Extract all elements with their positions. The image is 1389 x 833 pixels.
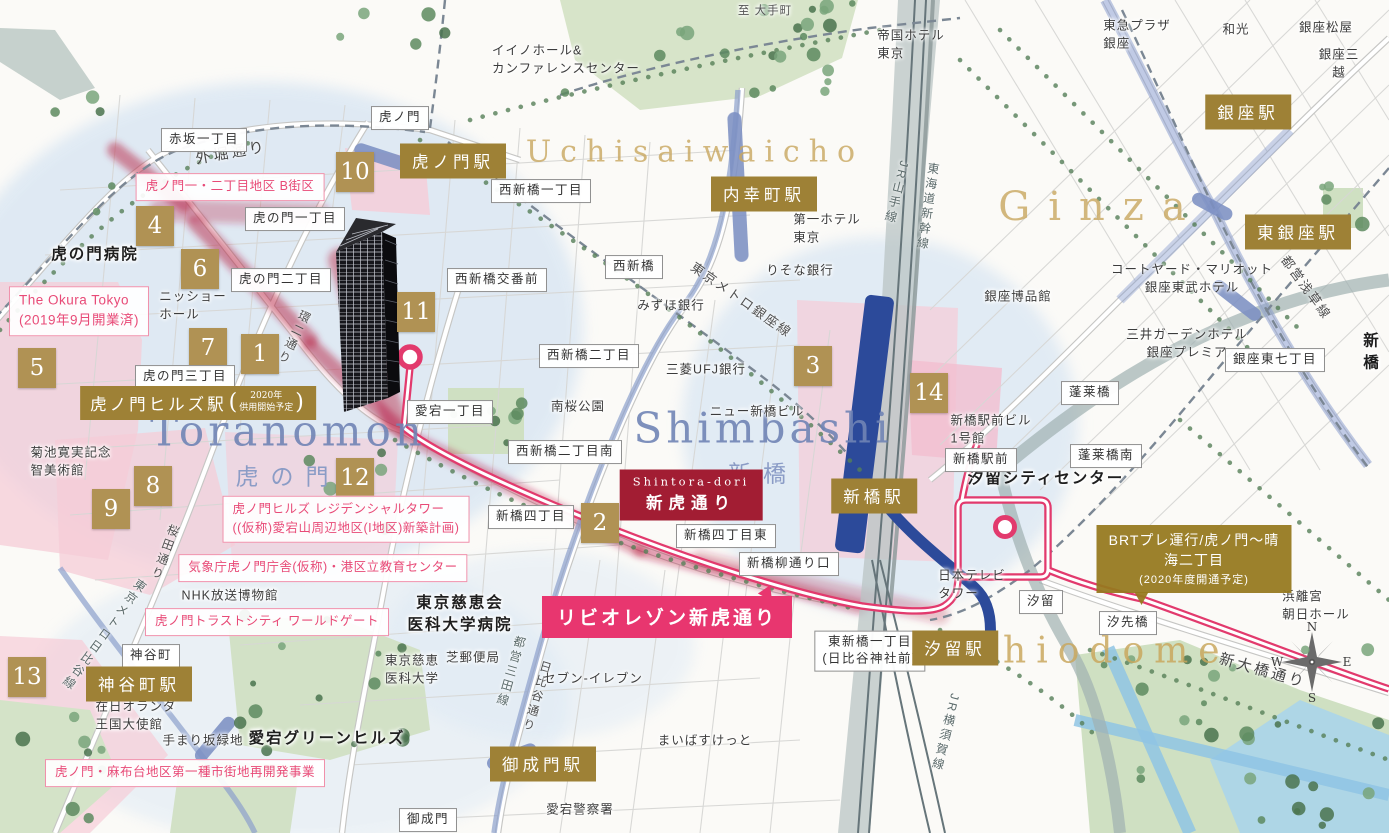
sign-kamiyacho: 神谷町 — [122, 644, 180, 668]
poi-toranomon-hospital: 虎の門病院 — [51, 244, 139, 266]
poi-to-otemachi: 至 大手町 — [738, 3, 792, 19]
project-azabudai: 虎ノ門・麻布台地区第一種市街地再開発事業 — [45, 759, 325, 787]
sign-shimbashi-4: 新橋四丁目 — [488, 505, 574, 529]
station-toranomon-hills: 虎ノ門ヒルズ駅 ( 2020年 供用開始予定 ) — [80, 386, 316, 420]
project-trust-city: 虎ノ門トラストシティ ワールドゲート — [145, 608, 389, 636]
station-uchisaiwaicho: 内幸町駅 — [711, 177, 817, 212]
poi-minamisakura-park: 南桜公園 — [551, 398, 605, 416]
poi-atago-green-hills: 愛宕グリーンヒルズ — [249, 728, 406, 750]
area-title-shiodome: Shiodome — [968, 631, 1229, 672]
project-kishocho: 気象庁虎ノ門庁舎(仮称)・港区立教育センター — [178, 554, 467, 582]
station-kamiyacho: 神谷町駅 — [86, 667, 192, 702]
station-shimbashi: 新橋駅 — [831, 479, 917, 514]
badge-6: 6 — [181, 249, 219, 289]
station-toranomon: 虎ノ門駅 — [400, 144, 506, 179]
sign-shiosaibashi: 汐先橋 — [1099, 611, 1157, 635]
poi-seven-eleven: セブン-イレブン — [543, 670, 643, 688]
sign-toranomon-2: 虎の門二丁目 — [231, 268, 331, 292]
sign-akasaka-1: 赤坂一丁目 — [161, 128, 247, 152]
poi-temarizaka-ryokuchi: 手まり坂緑地 — [162, 732, 243, 750]
poi-shiba-post-office: 芝郵便局 — [446, 649, 500, 667]
poi-nittele-tower: 日本テレビ タワー — [938, 568, 1006, 603]
shintora-dori-sign: Shintora-dori 新虎通り — [620, 470, 763, 521]
area-title-uchisaiwaicho: Uchisaiwaicho — [526, 135, 864, 170]
poi-imperial-hotel: 帝国ホテル 東京 — [877, 28, 945, 63]
compass-s: S — [1308, 691, 1316, 705]
station-ginza: 銀座駅 — [1205, 95, 1291, 130]
sign-toranomon: 虎ノ門 — [371, 106, 429, 130]
project-residential-tower: 虎ノ門ヒルズ レジデンシャルタワー ((仮称)愛宕山周辺地区(I地区)新築計画) — [223, 496, 470, 543]
project-okura-tokyo: The Okura Tokyo (2019年9月開業済) — [9, 286, 149, 336]
brt-route-sign: BRTプレ運行/虎ノ門〜晴海二丁目 (2020年度開通予定) — [1097, 525, 1292, 593]
poi-tokyu-plaza: 東急プラザ 銀座 — [1103, 18, 1171, 53]
sign-nishishimbashi-2-minami: 西新橋二丁目南 — [508, 440, 622, 464]
project-toranomon-1-2-b: 虎ノ門一・二丁目地区 B街区 — [136, 173, 325, 201]
poi-hakuhinkan: 銀座博品館 — [984, 288, 1052, 306]
sign-horaibashi-minami: 蓬莱橋南 — [1070, 444, 1142, 468]
station-higashi-ginza: 東銀座駅 — [1245, 215, 1351, 250]
libior-ezon-shintora-banner: リビオレゾン新虎通り — [542, 596, 792, 638]
badge-2: 2 — [581, 503, 619, 543]
badge-7: 7 — [189, 328, 227, 368]
badge-13: 13 — [8, 657, 46, 697]
sign-toranomon-1: 虎の門一丁目 — [245, 207, 345, 231]
poi-nissho-hall: ニッショー ホール — [159, 289, 227, 324]
poi-jikei-university: 東京慈恵 医科大学 — [385, 653, 439, 688]
sign-ginza-higashi-7: 銀座東七丁目 — [1225, 348, 1325, 372]
poi-dutch-embassy: 在日オランダ 王国大使館 — [95, 699, 176, 734]
badge-9: 9 — [92, 489, 130, 529]
poi-resona-bank: りそな銀行 — [766, 262, 834, 280]
poi-iino-hall: イイノホール& カンファレンスセンター — [492, 43, 640, 78]
sign-horaibashi: 蓬莱橋 — [1061, 381, 1119, 405]
badge-5: 5 — [18, 348, 56, 388]
poi-mizuho-bank: みずほ銀行 — [637, 297, 705, 315]
poi-ginza-mitsukoshi: 銀座三越 — [1314, 47, 1364, 82]
poi-mufg-bank: 三菱UFJ銀行 — [666, 361, 746, 379]
compass-e: E — [1343, 655, 1352, 669]
toranomon-hills-tower — [336, 218, 400, 412]
sign-shimbashi-ekimae: 新橋駅前 — [945, 448, 1017, 472]
poi-new-shimbashi-bldg: ニュー新橋ビル — [710, 403, 805, 421]
poi-jikei-hospital: 東京慈恵会 医科大学病院 — [407, 592, 512, 635]
badge-14: 14 — [910, 373, 948, 413]
sign-yanagi-dori-guchi: 新橋柳通り口 — [739, 552, 839, 576]
area-title-ginza: Ginza — [998, 184, 1203, 230]
badge-12: 12 — [336, 458, 374, 498]
badge-1: 1 — [241, 334, 279, 374]
poi-kikuchi-museum: 菊池寛実記念 智美術館 — [30, 445, 111, 480]
poi-daiichi-hotel: 第一ホテル 東京 — [793, 212, 861, 247]
poi-courtyard-marriott: コートヤード・マリオット 銀座東武ホテル — [1111, 262, 1273, 297]
badge-10: 10 — [336, 152, 374, 192]
poi-maibasuketto: まいばすけっと — [658, 732, 753, 750]
sign-onarimon: 御成門 — [399, 808, 457, 832]
sign-nishishimbashi-2: 西新橋二丁目 — [539, 344, 639, 368]
sign-shiodome: 汐留 — [1019, 590, 1063, 614]
sign-higashi-shimbashi-1: 東新橋一丁目 (日比谷神社前) — [814, 631, 925, 672]
compass-n: N — [1307, 620, 1318, 634]
poi-shimbashi-ekimae-bldg: 新橋駅前ビル 1号館 — [950, 413, 1031, 448]
sign-nishishimbashi-koban: 西新橋交番前 — [447, 268, 547, 292]
station-onarimon: 御成門駅 — [490, 747, 596, 782]
poi-ginza-matsuya: 銀座松屋 — [1299, 19, 1353, 37]
sign-nishishimbashi-1: 西新橋一丁目 — [491, 179, 591, 203]
badge-8: 8 — [134, 466, 172, 506]
sign-atago-1: 愛宕一丁目 — [407, 400, 493, 424]
tokyo-area-map: Uchisaiwaicho Ginza Toranomon 虎の門 Shimba… — [0, 0, 1389, 833]
poi-hamarikyu-asahi-hall: 浜離宮 朝日ホール — [1282, 589, 1350, 624]
compass-w: W — [1271, 655, 1283, 669]
badge-4: 4 — [136, 206, 174, 246]
sign-shimbashi-4-higashi: 新橋四丁目東 — [676, 524, 776, 548]
poi-atago-police: 愛宕警察署 — [546, 801, 614, 819]
sign-nishishimbashi: 西新橋 — [605, 255, 663, 279]
poi-nhk-museum: NHK放送博物館 — [182, 587, 279, 605]
poi-shimbashi-edge: 新橋 — [1363, 330, 1381, 373]
badge-11: 11 — [397, 292, 435, 332]
poi-wako: 和光 — [1222, 21, 1249, 39]
badge-3: 3 — [794, 346, 832, 386]
station-shiodome: 汐留駅 — [912, 631, 998, 666]
